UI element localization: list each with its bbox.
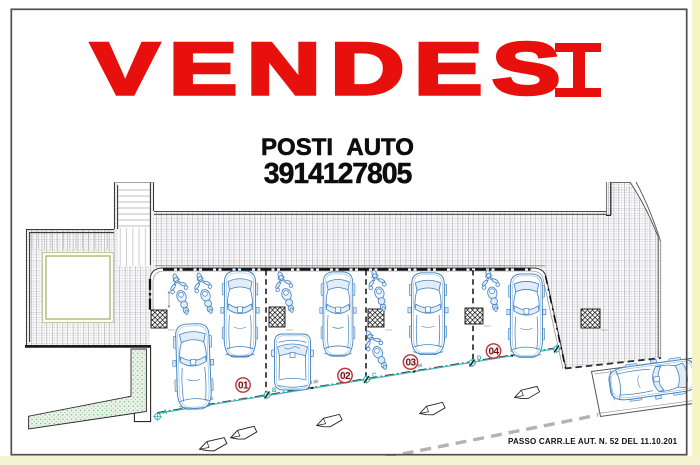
svg-text:PASSO CARR.LE AUT. N. 52 DEL 1: PASSO CARR.LE AUT. N. 52 DEL 11.10.201 — [508, 437, 678, 446]
svg-text:02: 02 — [340, 371, 351, 382]
svg-text:B: B — [272, 388, 277, 394]
svg-text:A: A — [163, 410, 168, 416]
svg-text:01: 01 — [238, 381, 249, 392]
svg-text:03: 03 — [405, 358, 416, 369]
svg-text:D: D — [477, 356, 482, 362]
svg-text:C: C — [372, 373, 377, 379]
svg-text:04: 04 — [488, 347, 499, 358]
